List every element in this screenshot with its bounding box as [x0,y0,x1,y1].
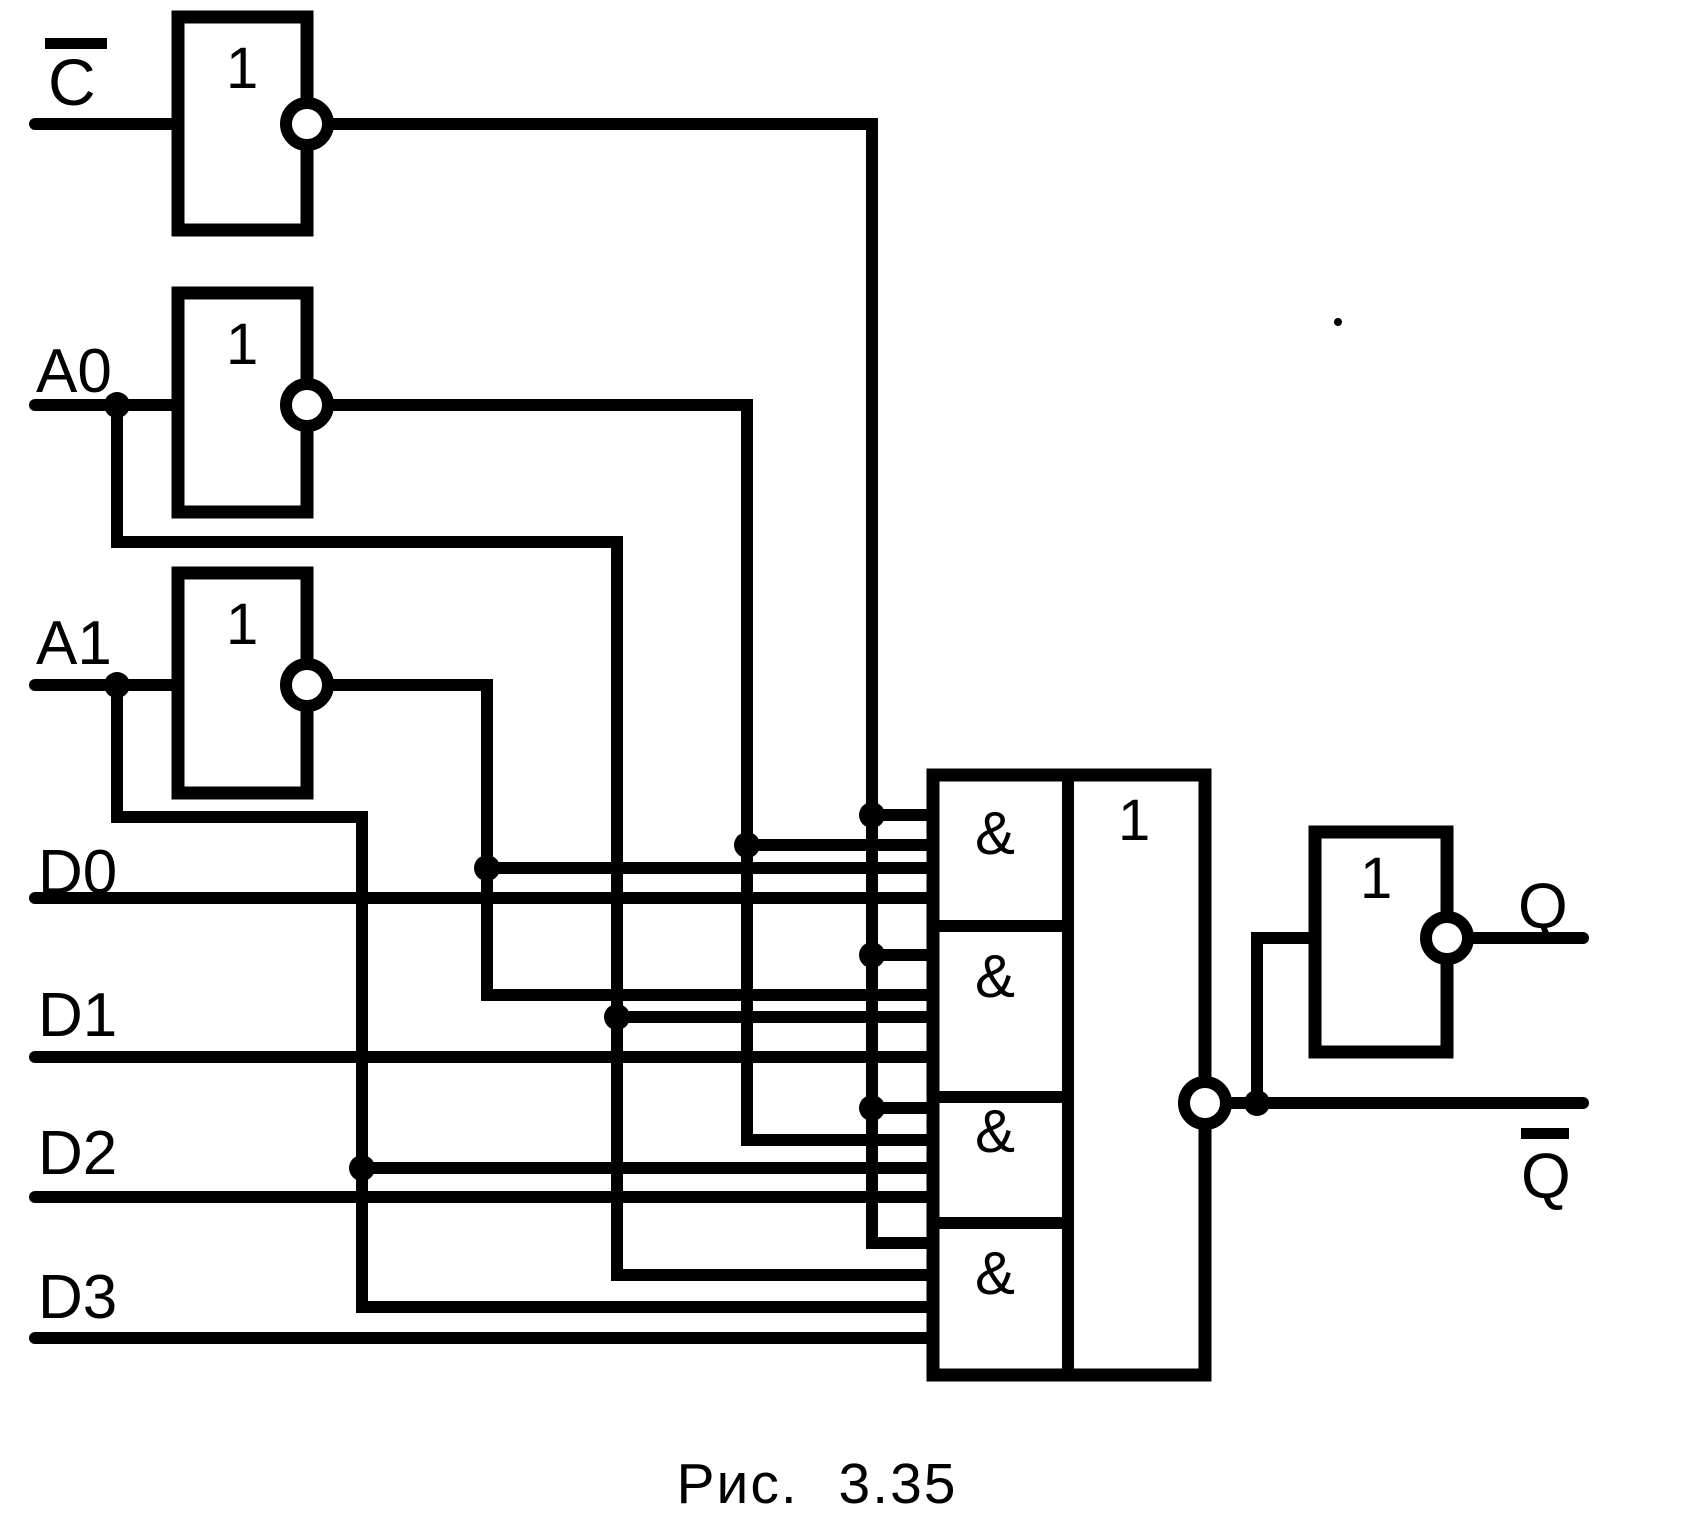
junction-dot-c-and2 [859,942,885,968]
figure-caption: Рис. 3.35 [677,1452,958,1516]
and-gate-1-symbol: & [975,800,1015,867]
not-gate-output-bubble-icon [1426,917,1468,959]
wire-riser-to-inverter [1257,938,1315,1103]
junction-dot-output [1244,1090,1270,1116]
not-gate-output-symbol: 1 [1360,846,1392,911]
junction-dot-a1-and3 [349,1155,375,1181]
ink-speck [1334,318,1342,326]
and-or-block: & & & & 1 [933,775,1226,1375]
and-gate-4-symbol: & [975,1240,1015,1307]
or-gate-symbol: 1 [1118,788,1150,853]
not-gate-c-bubble-icon [286,103,328,145]
q-output-label: Q [1518,870,1568,942]
not-gate-a0-symbol: 1 [226,312,258,377]
junction-dot-a0not-and1 [734,832,760,858]
junction-dot-a1not-and1 [474,855,500,881]
not-gate-a0-bubble-icon [286,384,328,426]
or-gate-bubble-icon [1184,1082,1226,1124]
junction-dot-a0-and2 [604,1004,630,1030]
d0-input-label: D0 [38,838,117,907]
a0-input-label: A0 [36,337,112,406]
figure-page: 1 1 1 & & & & 1 1 C A0 A1 D0 D1 [0,0,1695,1518]
not-gate-output: 1 [1315,832,1468,1052]
not-gate-c-symbol: 1 [226,36,258,101]
wire-a0-not-bus [334,405,933,1140]
q-bar-output-label: Q [1521,1140,1571,1212]
not-gate-a0: 1 [178,293,328,512]
q-bar-overline [1521,1128,1569,1139]
d1-input-label: D1 [38,981,117,1050]
not-gate-c: 1 [178,17,328,230]
junction-dot-c-and3 [859,1095,885,1121]
and-gate-3-symbol: & [975,1098,1015,1165]
not-gate-a1: 1 [178,573,328,793]
junction-dot-c-and1 [859,802,885,828]
circuit-diagram: 1 1 1 & & & & 1 1 C A0 A1 D0 D1 [0,0,1695,1518]
and-gate-2-symbol: & [975,943,1015,1010]
a1-input-label: A1 [36,609,112,678]
not-gate-a1-bubble-icon [286,664,328,706]
d2-input-label: D2 [38,1119,117,1188]
c-input-label: C [48,45,96,119]
d3-input-label: D3 [38,1263,117,1332]
not-gate-a1-symbol: 1 [226,592,258,657]
